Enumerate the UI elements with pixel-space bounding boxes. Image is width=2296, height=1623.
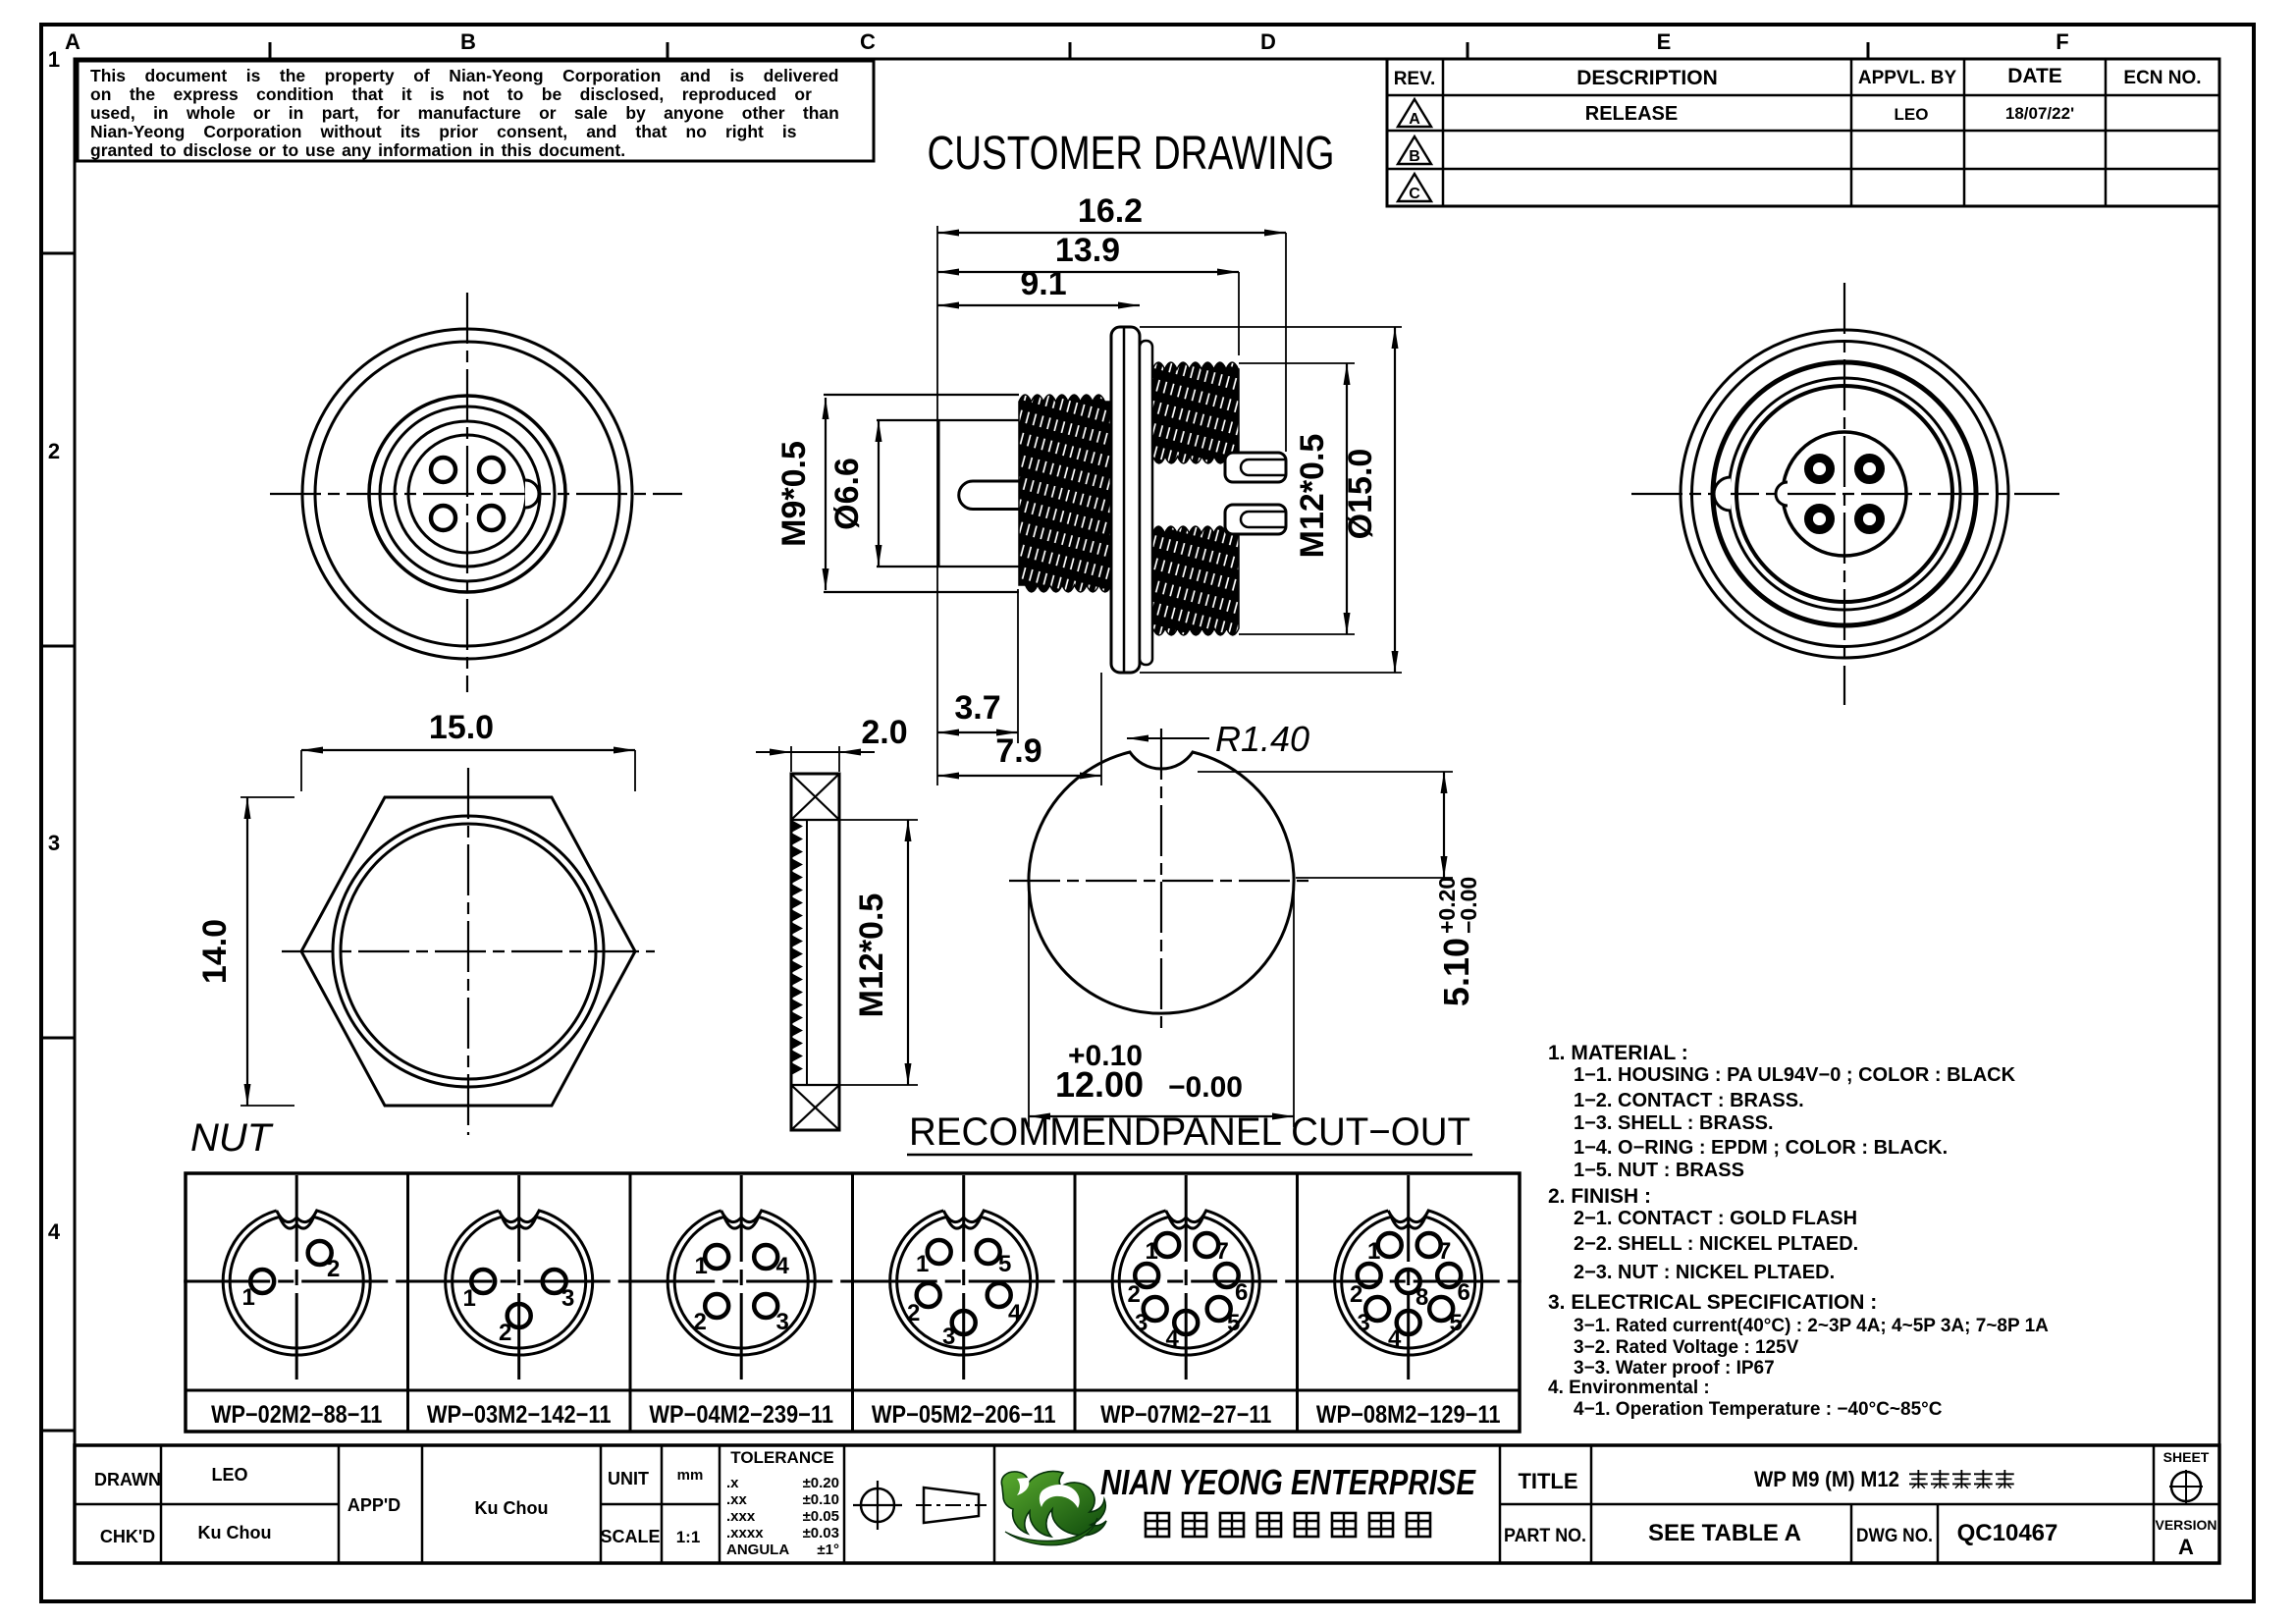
svg-text:B: B <box>1409 148 1420 165</box>
svg-text:7: 7 <box>1438 1238 1451 1265</box>
svg-text:3−1. Rated current(40°C) : 2: 3−1. Rated current(40°C) : 2~3P 4A; 4~5P… <box>1574 1316 2049 1336</box>
svg-text:1: 1 <box>242 1284 255 1311</box>
svg-text:3: 3 <box>48 831 60 855</box>
svg-text:1:1: 1:1 <box>676 1528 701 1546</box>
svg-text:2: 2 <box>1350 1281 1362 1308</box>
svg-text:APP'D: APP'D <box>347 1495 400 1515</box>
svg-text:WP−07M2−27−11: WP−07M2−27−11 <box>1100 1401 1271 1429</box>
svg-text:used, in whole or in part, for: used, in whole or in part, for manufactu… <box>90 103 839 123</box>
svg-text:.xxx: .xxx <box>726 1508 756 1525</box>
svg-text:2. FINISH :: 2. FINISH : <box>1548 1185 1651 1208</box>
svg-text:RELEASE: RELEASE <box>1585 103 1678 125</box>
svg-text:1: 1 <box>463 1285 476 1312</box>
svg-text:granted to disclose or to use: granted to disclose or to use any inform… <box>90 140 625 160</box>
svg-text:±0.10: ±0.10 <box>803 1491 839 1508</box>
svg-text:±0.05: ±0.05 <box>803 1508 839 1525</box>
svg-text:Ku Chou: Ku Chou <box>475 1498 549 1518</box>
svg-text:M9*0.5: M9*0.5 <box>775 441 813 547</box>
svg-text:4: 4 <box>1388 1325 1402 1352</box>
svg-text:PART NO.: PART NO. <box>1504 1526 1586 1546</box>
svg-text:4: 4 <box>48 1219 61 1244</box>
svg-text:C: C <box>1409 186 1420 202</box>
svg-text:4: 4 <box>776 1253 790 1279</box>
svg-text:3: 3 <box>1135 1310 1148 1336</box>
svg-text:VERSION: VERSION <box>2155 1517 2216 1533</box>
svg-text:6: 6 <box>1458 1279 1470 1306</box>
svg-text:APPVL. BY: APPVL. BY <box>1858 68 1957 88</box>
svg-text:A: A <box>65 29 80 54</box>
svg-text:ANGULA: ANGULA <box>726 1542 789 1558</box>
svg-text:1−2. CONTACT : BRASS.: 1−2. CONTACT : BRASS. <box>1574 1090 1804 1111</box>
svg-text:7.9: 7.9 <box>995 732 1041 770</box>
svg-text:1: 1 <box>916 1251 929 1277</box>
svg-text:NUT: NUT <box>190 1116 274 1160</box>
svg-text:4: 4 <box>1166 1325 1180 1352</box>
svg-text:This document is the property: This document is the property of Nian-Ye… <box>90 66 839 85</box>
svg-text:3−2. Rated Voltage : 125V: 3−2. Rated Voltage : 125V <box>1574 1337 1799 1358</box>
svg-text:2−3. NUT : NICKEL PLTAED.: 2−3. NUT : NICKEL PLTAED. <box>1574 1262 1835 1283</box>
svg-text:±0.20: ±0.20 <box>803 1475 839 1491</box>
svg-text:.xxxx: .xxxx <box>726 1525 764 1542</box>
svg-text:WP M9 (M) M12: WP M9 (M) M12 <box>1754 1467 1899 1491</box>
svg-text:LEO: LEO <box>211 1465 247 1485</box>
svg-text:1: 1 <box>48 47 60 72</box>
svg-text:3: 3 <box>942 1324 955 1350</box>
svg-text:M12*0.5: M12*0.5 <box>1294 434 1331 559</box>
svg-text:WP−05M2−206−11: WP−05M2−206−11 <box>872 1401 1056 1429</box>
svg-text:C: C <box>860 29 876 54</box>
svg-text:±0.03: ±0.03 <box>803 1525 839 1542</box>
svg-text:5: 5 <box>1450 1310 1463 1336</box>
svg-text:1−5. NUT : BRASS: 1−5. NUT : BRASS <box>1574 1160 1744 1181</box>
svg-text:Nian-Yeong Corporation without: Nian-Yeong Corporation without its prior… <box>90 122 797 141</box>
svg-text:Ku Chou: Ku Chou <box>198 1523 272 1542</box>
svg-text:A: A <box>2178 1535 2194 1559</box>
svg-text:NIAN YEONG ENTERPRISE: NIAN YEONG ENTERPRISE <box>1100 1462 1476 1502</box>
svg-text:1. MATERIAL :: 1. MATERIAL : <box>1548 1042 1688 1064</box>
svg-text:6: 6 <box>1235 1279 1248 1306</box>
svg-text:2: 2 <box>327 1256 340 1282</box>
svg-text:2−2. SHELL : NICKEL PLTAED: 2−2. SHELL : NICKEL PLTAED. <box>1574 1233 1858 1255</box>
svg-text:2: 2 <box>694 1309 707 1335</box>
svg-text:2: 2 <box>907 1300 920 1326</box>
svg-text:on the express condition tha: on the express condition that it is not … <box>90 84 812 104</box>
svg-text:.xx: .xx <box>726 1491 748 1508</box>
svg-text:8: 8 <box>1415 1284 1428 1311</box>
svg-text:7: 7 <box>1216 1238 1229 1265</box>
svg-text:2.0: 2.0 <box>861 714 907 751</box>
svg-text:DWG NO.: DWG NO. <box>1856 1526 1933 1546</box>
svg-text:DRAWN: DRAWN <box>94 1470 161 1489</box>
svg-text:2−1. CONTACT : GOLD FLASH: 2−1. CONTACT : GOLD FLASH <box>1574 1208 1857 1229</box>
svg-text:1: 1 <box>1146 1238 1158 1265</box>
svg-text:3. ELECTRICAL SPECIFICATION :: 3. ELECTRICAL SPECIFICATION : <box>1548 1291 1877 1314</box>
svg-text:TOLERANCE: TOLERANCE <box>730 1448 833 1467</box>
svg-text:4. Environmental :: 4. Environmental : <box>1548 1378 1710 1398</box>
svg-text:3: 3 <box>561 1285 574 1312</box>
svg-text:1−3. SHELL : BRASS.: 1−3. SHELL : BRASS. <box>1574 1112 1774 1134</box>
svg-text:1: 1 <box>1367 1238 1380 1265</box>
svg-text:DESCRIPTION: DESCRIPTION <box>1576 67 1718 89</box>
svg-text:5: 5 <box>1227 1310 1240 1336</box>
svg-text:15.0: 15.0 <box>429 709 494 746</box>
svg-text:E: E <box>1657 29 1672 54</box>
svg-text:2: 2 <box>499 1320 511 1346</box>
svg-text:CUSTOMER DRAWING: CUSTOMER DRAWING <box>928 128 1335 180</box>
svg-text:WP−04M2−239−11: WP−04M2−239−11 <box>649 1401 833 1429</box>
svg-text:WP−02M2−88−11: WP−02M2−88−11 <box>211 1401 382 1429</box>
svg-text:SHEET: SHEET <box>2163 1449 2210 1465</box>
svg-text:18/07/22': 18/07/22' <box>2005 104 2074 123</box>
svg-text:LEO: LEO <box>1895 105 1929 124</box>
svg-text:4: 4 <box>1008 1300 1022 1326</box>
svg-text:SCALE: SCALE <box>600 1527 660 1546</box>
svg-text:3−3. Water proof : IP67: 3−3. Water proof : IP67 <box>1574 1358 1775 1379</box>
svg-text:CHK'D: CHK'D <box>100 1527 155 1546</box>
svg-text:5.10: 5.10 <box>1436 938 1476 1006</box>
svg-text:Ø15.0: Ø15.0 <box>1342 449 1379 540</box>
svg-text:DATE: DATE <box>2007 65 2062 87</box>
svg-text:2: 2 <box>48 439 60 463</box>
svg-text:5: 5 <box>998 1251 1011 1277</box>
svg-text:B: B <box>460 29 476 54</box>
svg-text:D: D <box>1260 29 1276 54</box>
svg-text:WP−08M2−129−11: WP−08M2−129−11 <box>1316 1401 1501 1429</box>
svg-text:UNIT: UNIT <box>608 1469 649 1488</box>
svg-text:SEE TABLE A: SEE TABLE A <box>1648 1520 1801 1546</box>
svg-text:−0.00: −0.00 <box>1456 877 1481 934</box>
svg-text:ECN NO.: ECN NO. <box>2123 68 2201 88</box>
svg-text:12.00: 12.00 <box>1055 1064 1144 1105</box>
svg-text:1−1. HOUSING : PA UL94V−0 ; C: 1−1. HOUSING : PA UL94V−0 ; COLOR : BLAC… <box>1574 1064 2016 1086</box>
svg-text:−0.00: −0.00 <box>1168 1071 1243 1104</box>
svg-text:WP−03M2−142−11: WP−03M2−142−11 <box>427 1401 612 1429</box>
svg-text:4−1. Operation Temperature :: 4−1. Operation Temperature : −40°C~85°C <box>1574 1399 1943 1420</box>
svg-text:9.1: 9.1 <box>1020 265 1066 302</box>
svg-text:R1.40: R1.40 <box>1215 719 1309 759</box>
svg-text:16.2: 16.2 <box>1078 192 1143 230</box>
svg-text:3: 3 <box>1358 1310 1370 1336</box>
svg-text:±1°: ±1° <box>817 1542 839 1558</box>
svg-text:13.9: 13.9 <box>1055 232 1120 269</box>
svg-text:QC10467: QC10467 <box>1957 1520 2058 1546</box>
svg-text:A: A <box>1409 111 1420 128</box>
svg-text:2: 2 <box>1128 1281 1141 1308</box>
svg-text:3: 3 <box>776 1309 789 1335</box>
svg-text:REV.: REV. <box>1394 69 1436 89</box>
svg-text:14.0: 14.0 <box>196 919 234 984</box>
svg-text:F: F <box>2056 29 2068 54</box>
svg-text:RECOMMENDPANEL CUT−OUT: RECOMMENDPANEL CUT−OUT <box>909 1110 1470 1154</box>
svg-text:3.7: 3.7 <box>954 689 1000 727</box>
svg-text:1: 1 <box>695 1253 708 1279</box>
svg-text:M12*0.5: M12*0.5 <box>853 893 890 1018</box>
svg-text:1−4. O−RING : EPDM ; COLOR: 1−4. O−RING : EPDM ; COLOR : BLACK. <box>1574 1137 1948 1159</box>
svg-text:.x: .x <box>726 1475 739 1491</box>
svg-text:Ø6.6: Ø6.6 <box>828 458 866 530</box>
svg-text:mm: mm <box>677 1467 704 1484</box>
svg-text:TITLE: TITLE <box>1518 1469 1577 1493</box>
